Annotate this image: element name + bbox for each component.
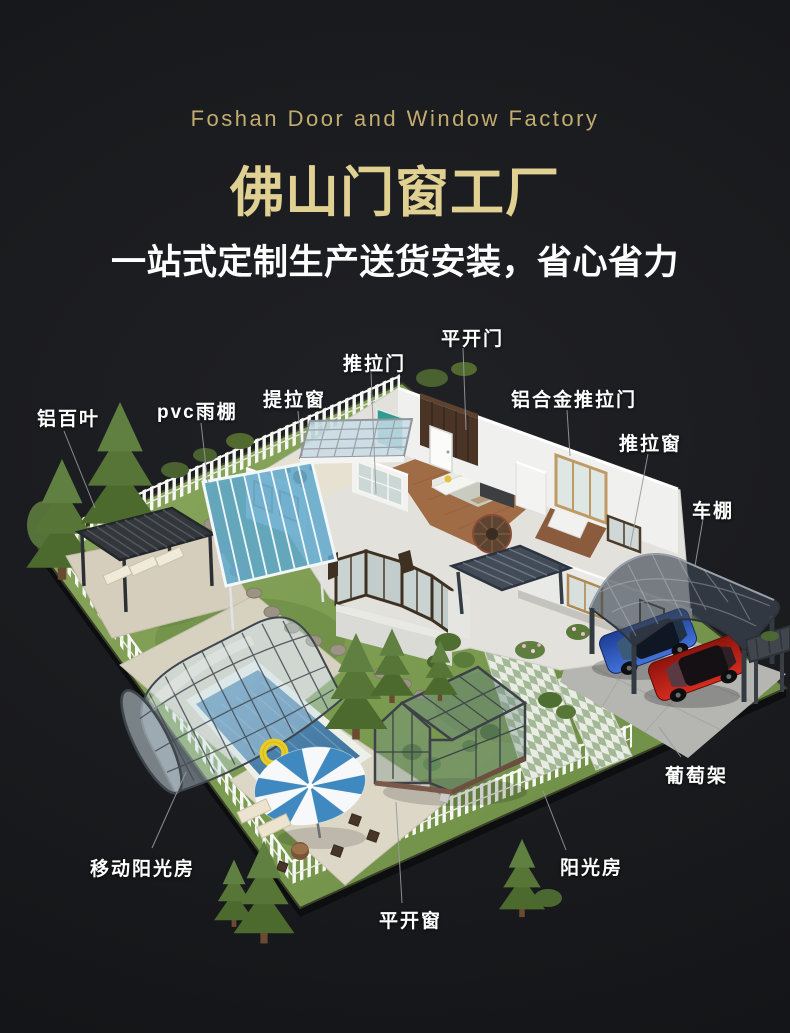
label-casement-window: 平开窗 bbox=[379, 906, 442, 933]
label-pvc-canopy: pvc雨棚 bbox=[157, 397, 238, 424]
spiral-staircase bbox=[473, 515, 511, 553]
label-mobile-sunroom: 移动阳光房 bbox=[90, 854, 195, 881]
label-casement-door: 平开门 bbox=[441, 324, 504, 351]
label-sunroom: 阳光房 bbox=[560, 853, 623, 880]
label-sliding-door: 推拉门 bbox=[343, 349, 406, 376]
label-lift-window: 提拉窗 bbox=[263, 385, 326, 412]
label-sliding-window: 推拉窗 bbox=[619, 429, 682, 456]
label-grape-trellis: 葡萄架 bbox=[665, 761, 728, 788]
label-carport: 车棚 bbox=[692, 496, 734, 523]
label-aluminum-sliding-door: 铝合金推拉门 bbox=[511, 385, 637, 412]
villa-3d-scene: 铝百叶 pvc雨棚 提拉窗 推拉门 平开门 铝合金推拉门 推拉窗 车棚 葡萄架 … bbox=[0, 0, 790, 1033]
label-aluminum-louver: 铝百叶 bbox=[37, 404, 100, 431]
poster: Foshan Door and Window Factory 佛山门窗工厂 一站… bbox=[0, 0, 790, 1033]
